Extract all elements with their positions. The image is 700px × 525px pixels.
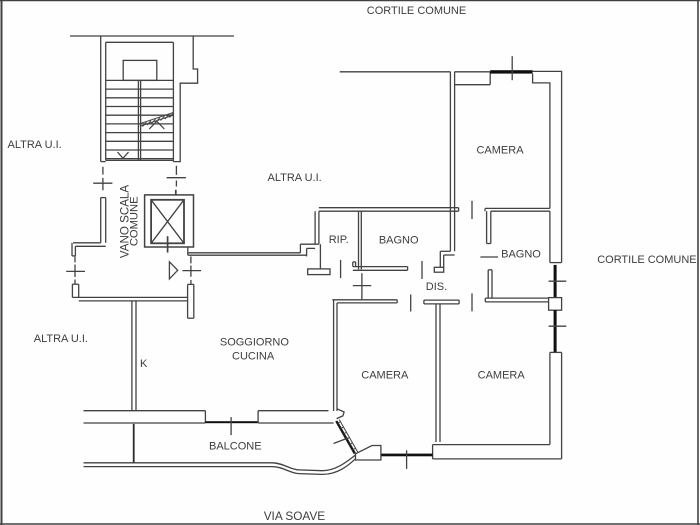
svg-text:VIA SOAVE: VIA SOAVE [264,509,326,523]
svg-text:CAMERA: CAMERA [361,370,409,382]
svg-text:BAGNO: BAGNO [379,234,419,246]
svg-text:BAGNO: BAGNO [501,249,541,261]
svg-text:CORTILE COMUNE: CORTILE COMUNE [597,254,696,266]
svg-text:CAMERA: CAMERA [478,370,526,382]
svg-text:DIS.: DIS. [426,281,447,293]
svg-text:BALCONE: BALCONE [209,441,262,453]
svg-text:RIP.: RIP. [329,234,349,246]
svg-text:ALTRA U.I.: ALTRA U.I. [34,333,88,345]
svg-text:K: K [140,358,148,370]
svg-text:CAMERA: CAMERA [476,144,524,156]
svg-text:CORTILE COMUNE: CORTILE COMUNE [367,5,466,17]
svg-text:ALTRA U.I.: ALTRA U.I. [8,139,62,151]
svg-text:ALTRA U.I.: ALTRA U.I. [268,172,322,184]
svg-text:CUCINA: CUCINA [232,350,275,362]
svg-text:COMUNE: COMUNE [129,196,141,246]
svg-text:SOGGIORNO: SOGGIORNO [220,337,290,349]
